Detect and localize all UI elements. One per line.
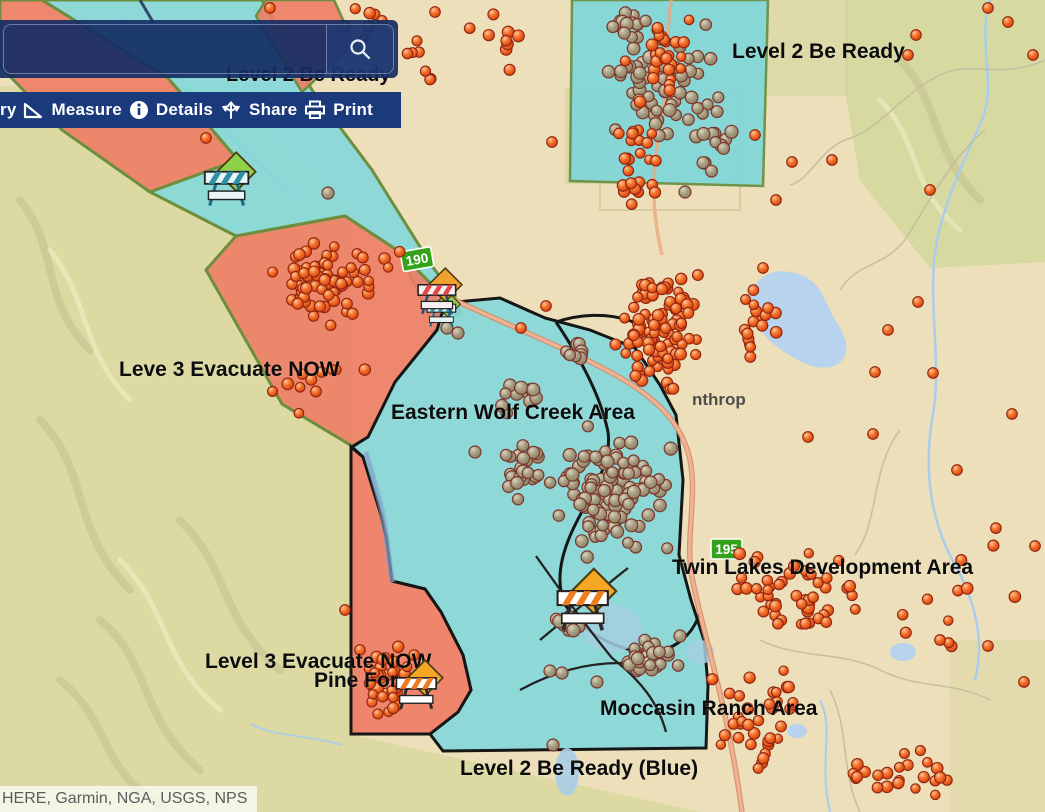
map-attribution: HERE, Garmin, NGA, USGS, NPS xyxy=(0,786,257,812)
search-input[interactable] xyxy=(4,25,326,73)
toolbar-share-label: Share xyxy=(249,100,297,120)
road-closure-barrier-icon[interactable] xyxy=(200,150,258,213)
toolbar-details-label: Details xyxy=(156,100,213,120)
toolbar-item-details[interactable]: Details xyxy=(129,100,213,120)
toolbar-measure-label: Measure xyxy=(51,100,121,120)
toolbar-item-print[interactable]: Print xyxy=(304,100,373,120)
search-icon xyxy=(347,36,373,62)
toolbar-item-partial[interactable]: ry xyxy=(0,100,16,120)
toolbar-item-share[interactable]: Share xyxy=(220,99,297,121)
toolbar-print-label: Print xyxy=(333,100,373,120)
search-panel xyxy=(0,20,398,78)
measure-icon xyxy=(23,101,44,119)
info-icon xyxy=(129,100,149,120)
town-label: nthrop xyxy=(692,390,746,409)
search-button[interactable] xyxy=(326,25,393,73)
road-closure-barrier-icon[interactable] xyxy=(414,266,464,321)
toolbar-partial-label: ry xyxy=(0,100,16,120)
map-application: 190195 nthrop Level 2 Be ReadyLevel 2 Be… xyxy=(0,0,1045,812)
print-icon xyxy=(304,100,326,120)
share-icon xyxy=(220,99,242,121)
map-toolbar: ry Measure Details xyxy=(0,92,401,128)
svg-text:nthrop: nthrop xyxy=(692,390,746,409)
road-closure-barrier-icon[interactable] xyxy=(392,658,445,716)
toolbar-item-measure[interactable]: Measure xyxy=(23,100,121,120)
road-closure-barrier-icon[interactable] xyxy=(552,566,619,638)
